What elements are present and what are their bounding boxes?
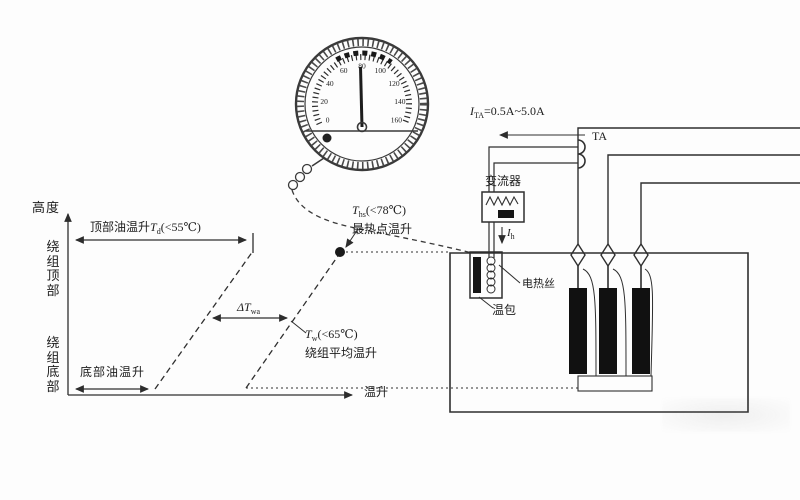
gauge-scale-100: 100 [375, 66, 387, 75]
temp-rise-axis-label: 温升 [364, 385, 388, 400]
top-oil-rise-text: 顶部油温升 [90, 220, 150, 234]
gauge-scale-140: 140 [394, 97, 406, 106]
gauge-scale-80: 80 [358, 62, 366, 71]
gradient-symbol: ΔT [237, 300, 251, 314]
gauge-scale-120: 120 [388, 79, 400, 88]
bushing-a [571, 244, 585, 266]
gauge-stem [312, 158, 324, 166]
watermark-smudge [662, 398, 790, 432]
winding-b [599, 288, 617, 374]
converter-element [498, 210, 514, 218]
current-transformer-symbol [578, 140, 585, 168]
phase-line-a [578, 128, 800, 244]
phase-line-b [608, 155, 800, 244]
bottom-oil-rise-label: 底部油温升 [80, 365, 145, 380]
oil-temperature-line [155, 251, 253, 389]
gauge-adjust-screw [323, 134, 332, 143]
gradient-subscript: wa [251, 307, 260, 316]
gauge-scale-40: 40 [326, 79, 334, 88]
avg-rise-label: Tw(<65℃) 绕组平均温升 [305, 327, 377, 361]
gauge-scale-0: 0 [326, 116, 330, 125]
gauge-scale-20: 20 [320, 97, 328, 106]
current-transformer-label: TA [592, 129, 607, 144]
hotspot-name: 最热点温升 [352, 222, 412, 236]
heater-current-subscript: h [511, 232, 515, 241]
hotspot-symbol: T [352, 203, 359, 217]
hotspot-limit: (<78℃) [366, 203, 406, 217]
winding-top-label: 绕组顶部 [46, 240, 60, 298]
bushing-b [601, 244, 615, 266]
gauge-scale-60: 60 [340, 66, 348, 75]
gauge-scale-160: 160 [391, 116, 403, 125]
ta-current-subscript: TA [474, 111, 484, 120]
capillary-loop-2 [296, 173, 305, 182]
avg-rise-leader [291, 321, 306, 333]
winding-bottom-label: 绕组底部 [46, 336, 60, 394]
gauge-needle [361, 67, 363, 127]
hotspot-dot [335, 247, 345, 257]
ta-current-label: ITA=0.5A~5.0A [470, 104, 545, 123]
temperature-bulb [473, 257, 481, 293]
converter-label: 变流器 [485, 174, 521, 189]
transformer-circuit [450, 128, 800, 412]
top-oil-rise-limit: (<55℃) [161, 220, 201, 234]
height-axis-label: 高度 [32, 200, 60, 215]
heater-current-label: Ih [507, 226, 515, 244]
bushing-c [634, 244, 648, 266]
top-oil-rise-label: 顶部油温升Td(<55℃) [90, 220, 201, 239]
winding-a [569, 288, 587, 374]
capillary-loop-1 [303, 165, 312, 174]
gradient-label: ΔTwa [237, 300, 260, 319]
avg-rise-limit: (<65℃) [317, 327, 357, 341]
avg-rise-symbol: T [305, 327, 312, 341]
transformer-winding-thermometer-diagram: 0 20 40 60 80 100 120 140 160 [0, 0, 800, 500]
winding-c [632, 288, 650, 374]
converter-winding-symbol [486, 197, 518, 205]
top-oil-rise-symbol: T [150, 220, 157, 234]
bulb-label: 温包 [492, 303, 516, 318]
hotspot-rise-label: Ths(<78℃) 最热点温升 [352, 203, 412, 237]
heater-coil [487, 257, 495, 293]
hotspot-subscript: hs [359, 210, 366, 219]
winding-bottom-bus [578, 376, 652, 391]
phase-line-c [641, 183, 800, 244]
heater-wire-label: 电热丝 [522, 277, 555, 292]
winding-temperature-line [246, 253, 340, 388]
ta-current-value: =0.5A~5.0A [484, 104, 545, 118]
avg-rise-name: 绕组平均温升 [305, 346, 377, 360]
capillary-loop-3 [289, 181, 298, 190]
